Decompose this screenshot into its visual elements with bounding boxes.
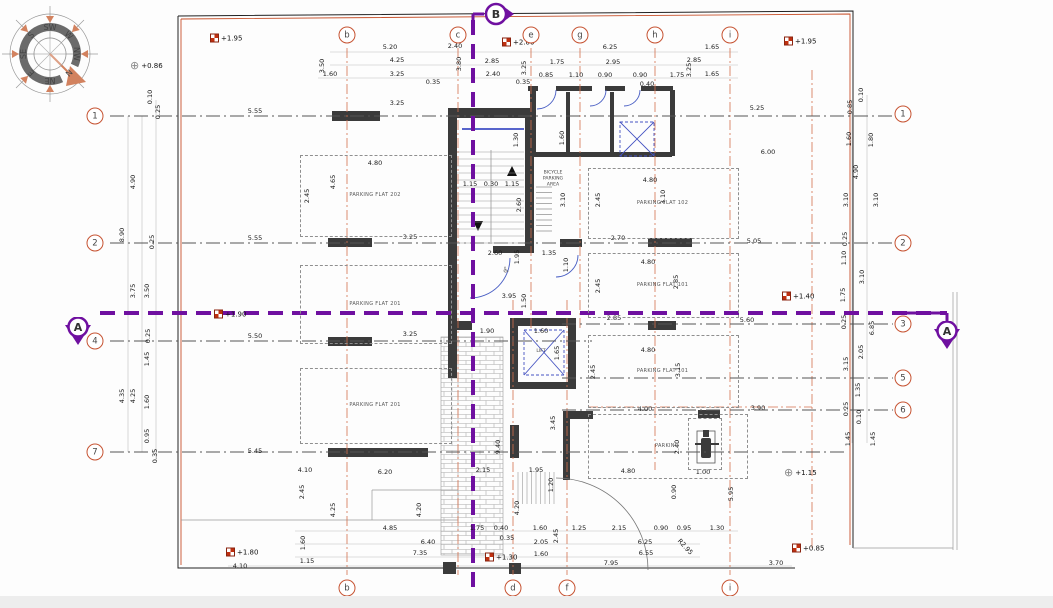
room-outline: [688, 418, 722, 470]
dimension-label: 4.25: [130, 389, 137, 403]
dimension-label: 1.60: [846, 132, 853, 146]
dimension-label: 1.10: [569, 72, 583, 79]
dimension-label: 1.75: [550, 59, 564, 66]
dimension-label: 0.90: [633, 72, 647, 79]
dimension-label: 1.50: [521, 294, 528, 308]
dimension-label: 5.50: [248, 333, 262, 340]
annotation-layer: 5.202.406.251.654.252.851.752.952.851.60…: [0, 0, 1053, 608]
grid-column-marker: h: [647, 27, 664, 44]
dimension-label: 3.10: [560, 193, 567, 207]
level-value: +1.80: [237, 548, 258, 556]
dimension-label: 0.90: [654, 525, 668, 532]
dimension-label: 3.95: [502, 293, 516, 300]
grid-row-marker: 1: [87, 108, 104, 125]
dimension-label: 4.90: [130, 175, 137, 189]
dimension-label: 3.75: [130, 284, 137, 298]
dimension-label: 1.65: [705, 44, 719, 51]
grid-row-marker: 3: [895, 316, 912, 333]
dimension-label: 0.40: [494, 525, 508, 532]
grid-column-marker: i: [722, 27, 739, 44]
dimension-label: 6.00: [761, 149, 775, 156]
dimension-label: 1.75: [470, 525, 484, 532]
dimension-label: 1.15: [463, 181, 477, 188]
dimension-label: 3.15: [843, 357, 850, 371]
dimension-label: 3.80: [456, 57, 463, 71]
dimension-label: 5.05: [747, 238, 761, 245]
dimension-label: R2.95: [676, 538, 694, 556]
level-value: +1.40: [793, 292, 814, 300]
dimension-label: 1.65: [554, 346, 561, 360]
room-label: PARKING: [655, 443, 679, 449]
dimension-label: 1.25: [572, 525, 586, 532]
dimension-label: 1.45: [870, 432, 877, 446]
dimension-label: 0.25: [841, 315, 848, 329]
dimension-label: 4.25: [330, 503, 337, 517]
dimension-label: 3.25: [390, 100, 404, 107]
spot-level-icon: [792, 544, 801, 553]
level-marker: ⊕+1.15: [784, 469, 817, 477]
dimension-label: 1.80: [868, 133, 875, 147]
level-value: +1.90: [225, 310, 246, 318]
grid-row-marker: 1: [895, 106, 912, 123]
room-label: PARKING FLAT 201: [349, 402, 400, 408]
spot-level-icon: [782, 292, 791, 301]
dimension-label: 1.75: [840, 288, 847, 302]
dimension-label: 3.50: [319, 59, 326, 73]
dimension-label: 4.10: [298, 467, 312, 474]
dimension-label: 3.25: [686, 63, 693, 77]
dimension-label: 0.90: [671, 485, 678, 499]
dimension-label: 1.45: [144, 352, 151, 366]
grid-row-marker: 6: [895, 402, 912, 419]
grid-column-marker: c: [450, 27, 467, 44]
dimension-label: 0.25: [843, 402, 850, 416]
dimension-label: 2.15: [612, 525, 626, 532]
dimension-label: 4.10: [233, 563, 247, 570]
level-value: +1.95: [795, 37, 816, 45]
dimension-label: 2.85: [485, 58, 499, 65]
grid-column-marker: f: [559, 580, 576, 597]
dimension-label: 4.20: [514, 501, 521, 515]
level-value: +0.86: [141, 62, 162, 70]
dimension-label: 3.45: [550, 416, 557, 430]
level-marker: +1.40: [782, 292, 814, 301]
dimension-label: 1.15: [505, 181, 519, 188]
dimension-label: 6.55: [639, 550, 653, 557]
dimension-label: 3.25: [390, 71, 404, 78]
dimension-label: 1.60: [534, 328, 548, 335]
dimension-label: 4.35: [119, 389, 126, 403]
room-label: PARKING FLAT 101: [637, 282, 688, 288]
dimension-label: 1.65: [705, 71, 719, 78]
dimension-label: 5.55: [248, 235, 262, 242]
dimension-label: 3.70: [769, 560, 783, 567]
dimension-label: 1.60: [300, 536, 307, 550]
grid-column-marker: d: [505, 580, 522, 597]
dimension-label: 0.95: [144, 429, 151, 443]
dimension-label: 1.75: [670, 72, 684, 79]
dimension-label: 4.25: [390, 57, 404, 64]
dimension-label: 1.45: [845, 432, 852, 446]
dimension-label: 0.25: [149, 235, 156, 249]
dimension-label: 5.60: [740, 317, 754, 324]
dimension-label: 5.55: [248, 108, 262, 115]
dimension-label: 0.95: [677, 525, 691, 532]
dimension-label: 3.50: [144, 284, 151, 298]
dimension-label: 3.25: [521, 61, 528, 75]
dimension-label: 0.25: [145, 329, 152, 343]
dimension-label: 2.15: [476, 467, 490, 474]
area-label: LIFT: [536, 349, 545, 355]
dimension-label: 7.95: [604, 560, 618, 567]
floor-plan-canvas: SWWNWNNEESES B A A ♿ 5.202.406.251.654.2…: [0, 0, 1053, 608]
room-label: PARKING FLAT 202: [349, 192, 400, 198]
spot-level-icon: [485, 553, 494, 562]
grid-column-marker: g: [572, 27, 589, 44]
dimension-label: 3.10: [843, 193, 850, 207]
spot-level-icon: [226, 548, 235, 557]
dimension-label: 4.20: [416, 503, 423, 517]
level-value: +0.85: [803, 544, 824, 552]
dimension-label: 6.25: [638, 539, 652, 546]
level-value: +1.95: [221, 34, 242, 42]
level-value: +1.30: [496, 553, 517, 561]
dimension-label: 1.10: [563, 258, 570, 272]
level-marker: +1.95: [784, 37, 816, 46]
dimension-label: 0.10: [856, 410, 863, 424]
dimension-label: 0.90: [598, 72, 612, 79]
dimension-label: 1.15: [300, 558, 314, 565]
dimension-label: 1.60: [533, 525, 547, 532]
dimension-label: 3.10: [873, 193, 880, 207]
dimension-label: 6.85: [869, 321, 876, 335]
grid-row-marker: 5: [895, 370, 912, 387]
level-marker: +1.80: [226, 548, 258, 557]
dimension-label: 2.45: [553, 529, 560, 543]
dimension-label: 6.25: [603, 44, 617, 51]
level-marker: +1.90: [214, 310, 246, 319]
grid-row-marker: 7: [87, 444, 104, 461]
dimension-label: 0.35: [500, 535, 514, 542]
level-marker: +1.95: [210, 34, 242, 43]
spot-level-icon: [210, 34, 219, 43]
dimension-label: 0.85: [539, 72, 553, 79]
dimension-label: 0.10: [147, 90, 154, 104]
dimension-label: 5.45: [248, 448, 262, 455]
dimension-label: 2.05: [858, 345, 865, 359]
dimension-label: 0.85: [847, 100, 854, 114]
grid-column-marker: b: [339, 27, 356, 44]
dimension-label: 1.95: [529, 467, 543, 474]
dimension-label: 2.05: [534, 539, 548, 546]
level-marker: ⊕+0.86: [130, 62, 163, 70]
dimension-label: 1.35: [855, 383, 862, 397]
grid-column-marker: b: [339, 580, 356, 597]
dimension-label: 2.40: [448, 43, 462, 50]
grid-row-marker: 2: [87, 235, 104, 252]
dimension-label: 9.40: [495, 440, 502, 454]
dimension-label: 0.40: [640, 81, 654, 88]
dimension-label: 0.25: [155, 105, 162, 119]
dimension-label: 1.10: [841, 251, 848, 265]
dimension-label: 0.35: [152, 449, 159, 463]
dimension-label: 2.95: [606, 59, 620, 66]
dimension-label: 5.20: [383, 44, 397, 51]
dimension-label: 1.20: [548, 478, 555, 492]
dimension-label: 2.40: [486, 71, 500, 78]
dimension-label: 1.60: [144, 395, 151, 409]
room-label: PARKING FLAT 102: [637, 200, 688, 206]
spot-level-icon: [502, 38, 511, 47]
dimension-label: 2.45: [299, 485, 306, 499]
spot-level-icon: [214, 310, 223, 319]
grid-column-marker: e: [523, 27, 540, 44]
dimension-label: 7.35: [413, 550, 427, 557]
dimension-label: 1.30: [710, 525, 724, 532]
dimension-label: 0.35: [426, 79, 440, 86]
spot-level-icon: [784, 37, 793, 46]
dimension-label: 6.40: [421, 539, 435, 546]
grid-row-marker: 2: [895, 235, 912, 252]
page-margin: [0, 596, 1053, 608]
dimension-label: 3.90: [751, 405, 765, 412]
dimension-label: 5.95: [728, 487, 735, 501]
level-value: +1.15: [795, 469, 816, 477]
dimension-label: 1.35: [542, 250, 556, 257]
dimension-label: 1.30: [513, 133, 520, 147]
dimension-label: 2.60: [516, 198, 523, 212]
level-marker: +0.85: [792, 544, 824, 553]
dimension-label: 0.30: [484, 181, 498, 188]
dimension-label: 3.10: [859, 270, 866, 284]
dimension-label: 5.25: [750, 105, 764, 112]
dimension-label: 2.60: [488, 250, 502, 257]
dimension-label: 1.90: [480, 328, 494, 335]
grid-column-marker: i: [722, 580, 739, 597]
dimension-label: 1.60: [559, 131, 566, 145]
dimension-label: 4.85: [383, 525, 397, 532]
dimension-label: 1.95: [514, 250, 521, 264]
level-marker: +1.30: [485, 553, 517, 562]
dimension-label: 1.60: [534, 551, 548, 558]
dimension-label: 0.35: [516, 79, 530, 86]
room-label: PARKING FLAT 101: [637, 368, 688, 374]
dimension-label: 6.20: [378, 469, 392, 476]
dimension-label: 0.10: [858, 88, 865, 102]
dimension-label: 8.90: [119, 228, 126, 242]
dimension-label: 0.25: [842, 232, 849, 246]
grid-row-marker: 4: [87, 333, 104, 350]
area-label: BICYCLE PARKING AREA: [543, 171, 563, 190]
dimension-label: 4.90: [853, 165, 860, 179]
room-label: PARKING FLAT 201: [349, 301, 400, 307]
